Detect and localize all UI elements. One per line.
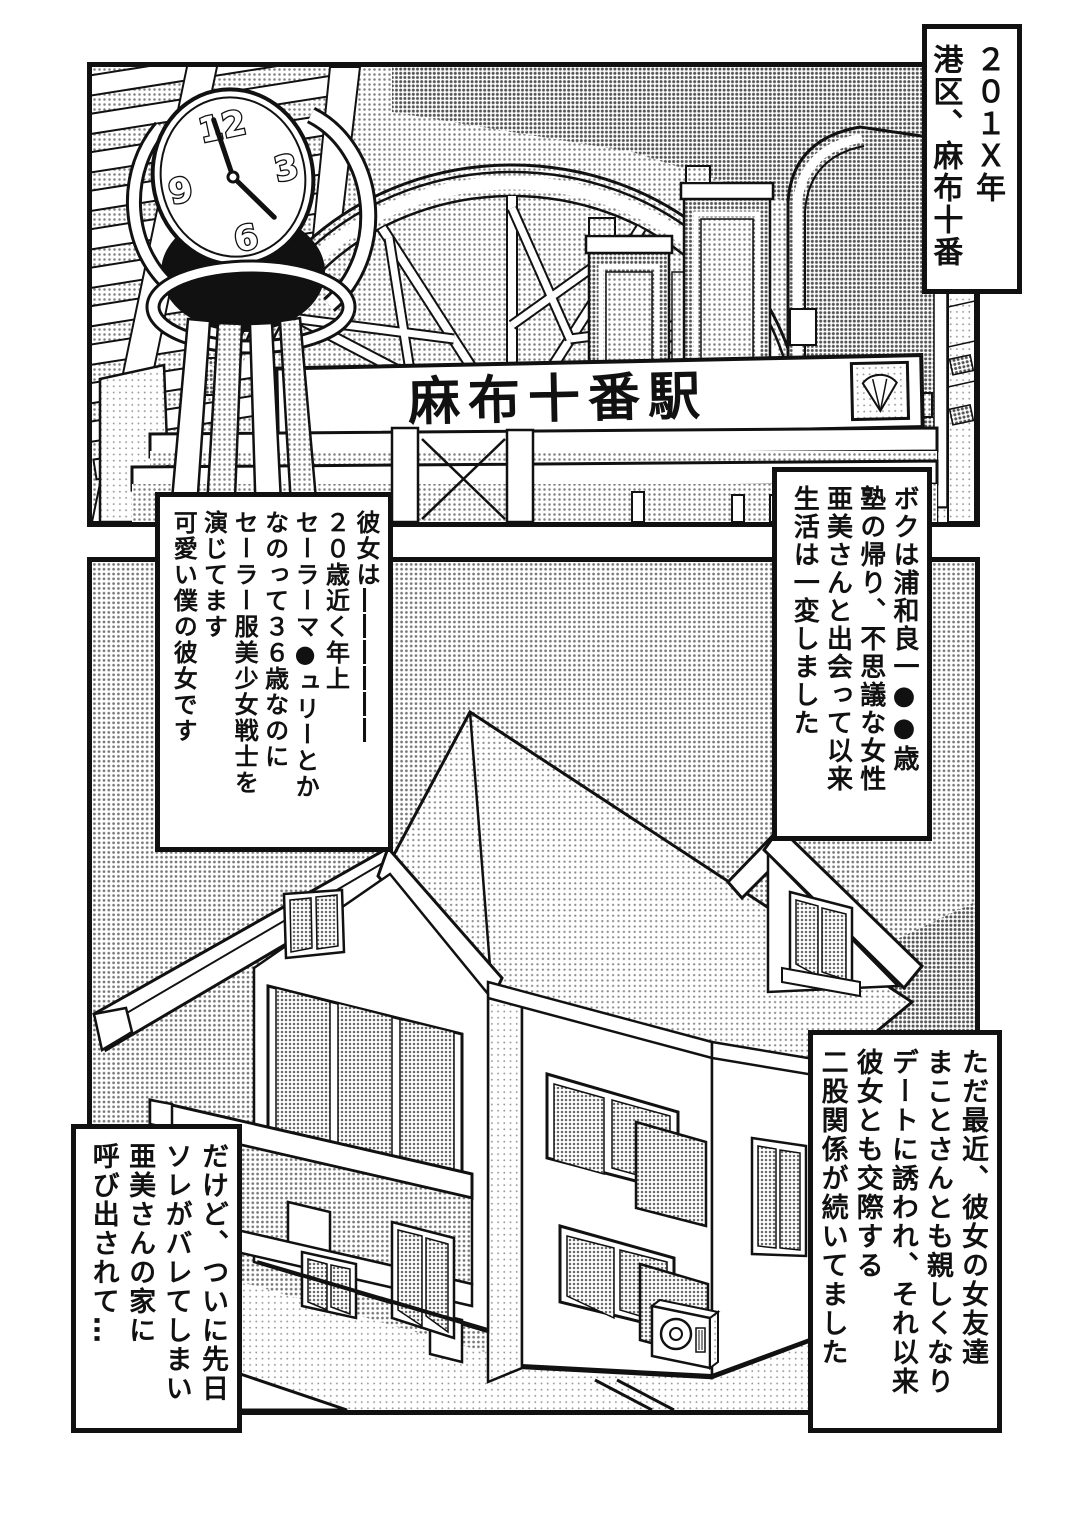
caption-line: ボクは浦和良一●●歳 xyxy=(887,485,920,823)
caption-line: だけど、ついに先日 xyxy=(194,1142,230,1415)
caption-line: なのって３６歳なのに xyxy=(259,510,289,834)
metro-logo-icon xyxy=(851,362,908,419)
caption-line: ２０１Ｘ年 xyxy=(965,44,1008,274)
caption-affair: ただ最近、彼女の女友達 まことさんとも親しくなり デートに誘われ、それ以来 彼女… xyxy=(808,1030,1002,1433)
caption-line: 演じてます xyxy=(198,510,228,834)
attic-window xyxy=(284,890,344,958)
far-wall-window xyxy=(752,1138,806,1256)
caption-line: 呼び出されて… xyxy=(84,1142,120,1415)
ac-unit xyxy=(652,1300,718,1368)
caption-line: ただ最近、彼女の女友達 xyxy=(955,1048,990,1415)
caption-line: 可愛い僕の彼女です xyxy=(168,510,198,834)
caption-line: 彼女は―――――― xyxy=(351,510,381,834)
station-sign-text: 麻布十番駅 xyxy=(407,367,708,433)
caption-line: ソレがバレてしまい xyxy=(157,1142,193,1415)
caption-line: 港区、麻布十番 xyxy=(923,44,966,274)
caption-line: セーラー服美少女戦士を xyxy=(229,510,259,834)
ac-fan-icon xyxy=(661,1319,691,1349)
caption-summoned: だけど、ついに先日 ソレがバレてしまい 亜美さんの家に 呼び出されて… xyxy=(71,1124,242,1433)
panel-station-street: 麻布十番駅 xyxy=(87,62,980,527)
manga-page: 麻布十番駅 xyxy=(0,0,1075,1518)
caption-line: 二股関係が続いてました xyxy=(815,1048,850,1415)
caption-line: 生活は一変しました xyxy=(787,485,820,823)
station-street-art: 麻布十番駅 xyxy=(92,67,975,522)
caption-line: 亜美さんの家に xyxy=(121,1142,157,1415)
caption-line: 亜美さんと出会って以来 xyxy=(820,485,853,823)
caption-line: 彼女とも交際する xyxy=(850,1048,885,1415)
caption-year-location: ２０１Ｘ年 港区、麻布十番 xyxy=(922,24,1022,294)
caption-line: ２０歳近く年上 xyxy=(320,510,350,834)
caption-line: デートに誘われ、それ以来 xyxy=(885,1048,920,1415)
caption-line: まことさんとも親しくなり xyxy=(920,1048,955,1415)
caption-line: 塾の帰り、不思議な女性 xyxy=(853,485,886,823)
caption-girlfriend-intro: 彼女は―――――― ２０歳近く年上 セーラーマ●ュリーとか なのって３６歳なのに… xyxy=(155,492,393,852)
caption-narrator-intro: ボクは浦和良一●●歳 塾の帰り、不思議な女性 亜美さんと出会って以来 生活は一変… xyxy=(772,467,932,841)
caption-line: セーラーマ●ュリーとか xyxy=(290,510,320,834)
